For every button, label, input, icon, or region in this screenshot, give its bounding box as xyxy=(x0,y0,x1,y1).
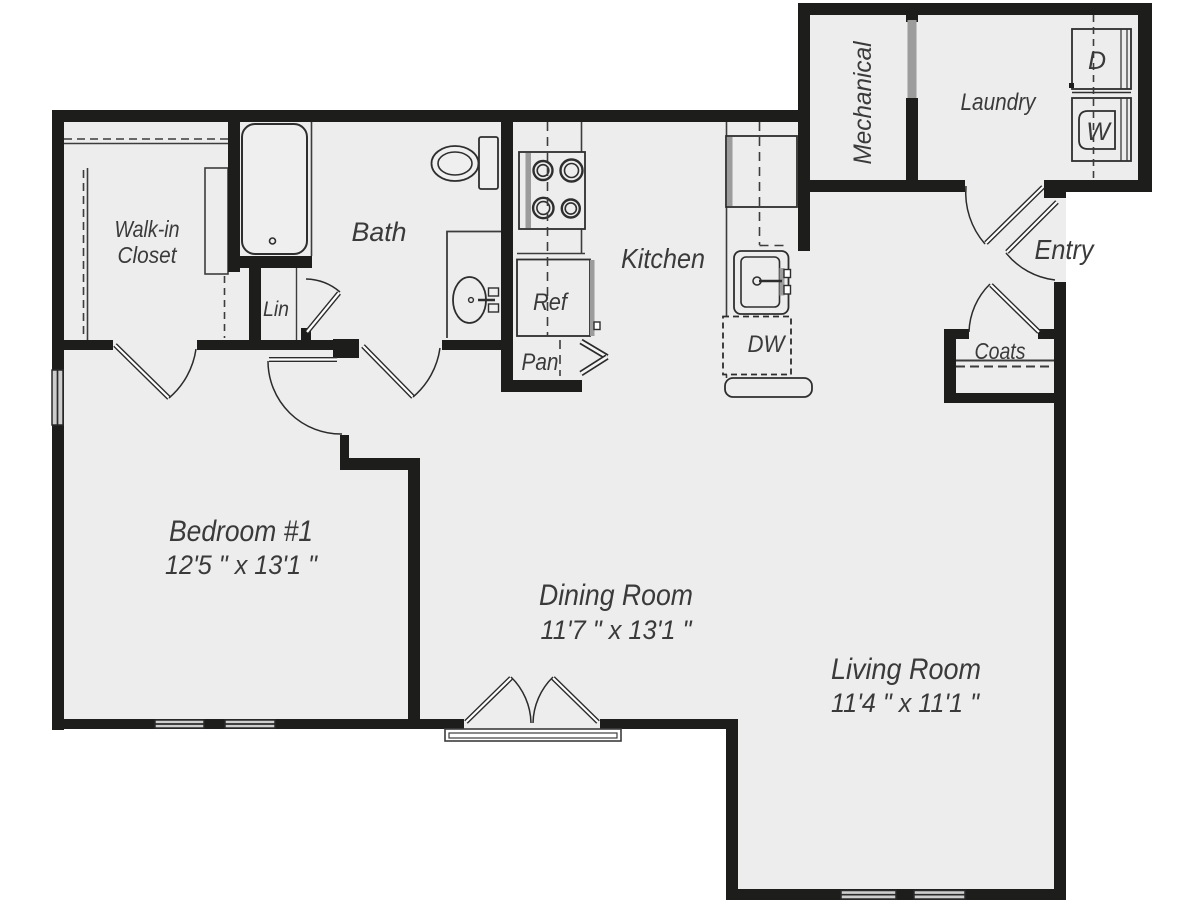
svg-text:Lin: Lin xyxy=(263,298,289,321)
svg-text:Closet: Closet xyxy=(118,242,178,268)
svg-text:Living Room: Living Room xyxy=(831,653,981,686)
svg-text:Laundry: Laundry xyxy=(961,89,1037,116)
svg-text:Pan: Pan xyxy=(522,349,559,376)
svg-text:Ref: Ref xyxy=(533,289,569,316)
svg-text:Mechanical: Mechanical xyxy=(849,40,877,164)
svg-text:11'4 " x 11'1 ": 11'4 " x 11'1 " xyxy=(831,688,980,718)
svg-text:Coats: Coats xyxy=(975,338,1026,364)
svg-text:D: D xyxy=(1088,47,1106,75)
svg-text:Bath: Bath xyxy=(352,217,407,247)
svg-text:Bedroom #1: Bedroom #1 xyxy=(169,515,313,548)
svg-text:11'7 " x 13'1 ": 11'7 " x 13'1 " xyxy=(541,615,693,645)
svg-text:Entry: Entry xyxy=(1035,234,1096,265)
svg-text:12'5 " x 13'1 ": 12'5 " x 13'1 " xyxy=(165,550,318,580)
svg-text:Kitchen: Kitchen xyxy=(621,243,705,274)
svg-text:Dining Room: Dining Room xyxy=(539,579,693,612)
svg-text:Walk-in: Walk-in xyxy=(115,216,180,242)
svg-text:DW: DW xyxy=(748,331,787,358)
svg-text:W: W xyxy=(1086,118,1112,146)
